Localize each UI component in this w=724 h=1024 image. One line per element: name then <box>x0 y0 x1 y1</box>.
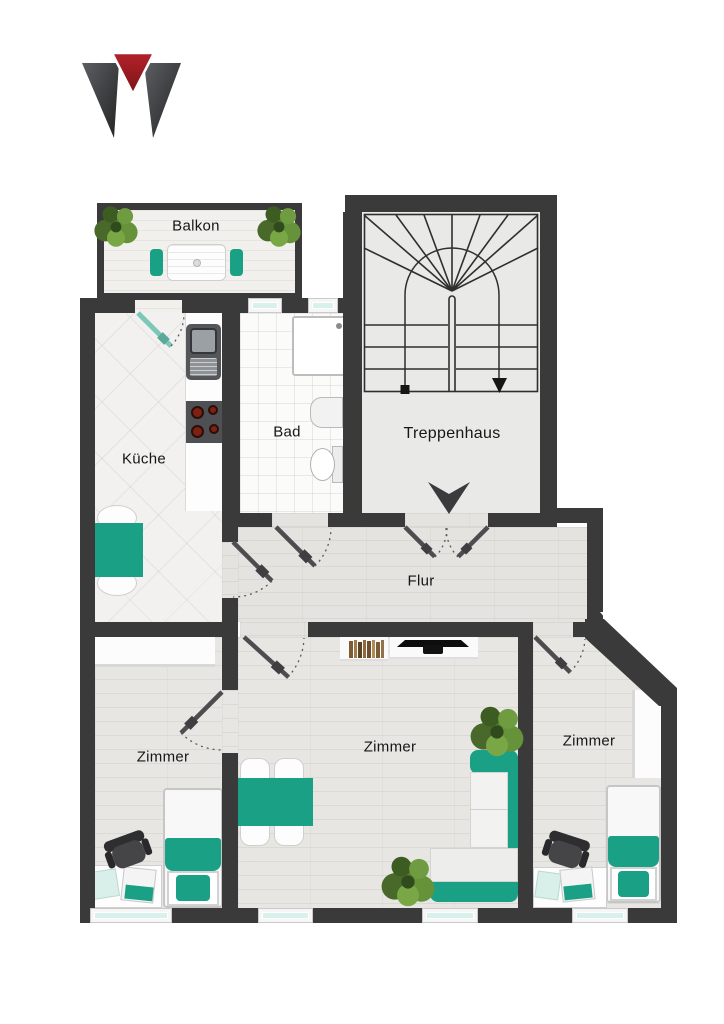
wardrobe-right-room <box>632 690 661 778</box>
laptop-right-screen <box>563 884 592 901</box>
wall-kueche-flur <box>222 513 238 542</box>
wall-treppenhaus-left <box>343 212 362 513</box>
window-zimmer-rechts <box>572 908 628 923</box>
bed-left-blanket <box>165 838 221 871</box>
window-zimmer-links <box>90 908 172 923</box>
right-door-threshold <box>533 622 573 637</box>
sofa-seat-vertical <box>470 772 508 848</box>
wall <box>282 298 308 313</box>
stove-burner <box>209 424 219 434</box>
window-glass <box>262 912 309 919</box>
shower-drain <box>336 323 342 329</box>
wall-kueche-bad <box>222 313 240 513</box>
entrance-threshold <box>405 513 488 527</box>
stove-burner <box>208 405 218 415</box>
toilet-bowl <box>310 448 335 481</box>
wall-left-room-right <box>222 753 238 908</box>
window-glass <box>576 912 624 919</box>
bed-left-pillow <box>176 875 210 901</box>
bed-right-blanket <box>608 836 659 867</box>
bed-right-pillow <box>618 871 649 897</box>
room-label-flur: Flur <box>407 573 434 590</box>
window-zimmer-mitte-2 <box>422 908 478 923</box>
kitchen-sink-basin <box>190 328 217 354</box>
sofa-seat-corner <box>430 848 518 882</box>
dining-table <box>231 778 313 826</box>
stove-burner <box>191 406 204 419</box>
window-bad <box>248 298 282 313</box>
washbasin <box>310 397 343 428</box>
room-label-balkon: Balkon <box>172 218 220 235</box>
window-glass <box>312 302 334 309</box>
left-door-threshold <box>222 690 238 753</box>
kitchen-table <box>90 523 143 577</box>
treppenhaus-floor <box>362 212 540 513</box>
sofa-cushion-line <box>470 809 508 810</box>
room-label-kueche: Küche <box>122 451 166 468</box>
wall-notch-vertical <box>587 523 603 622</box>
middle-door-threshold <box>240 622 308 637</box>
wall-treppenhaus-bottom <box>488 513 557 527</box>
room-label-bad: Bad <box>273 424 301 441</box>
room-label-zimmer-links: Zimmer <box>137 749 190 766</box>
wall-bad-bottom <box>328 513 350 527</box>
room-label-zimmer-rechts: Zimmer <box>563 733 616 750</box>
w-mark-logo <box>82 53 181 138</box>
wall-kueche-flur <box>222 598 238 690</box>
kueche-door-threshold <box>222 542 238 598</box>
wall-treppenhaus-bottom <box>350 513 405 527</box>
window-glass <box>94 912 168 919</box>
room-label-zimmer-mitte: Zimmer <box>364 739 417 756</box>
wall-kueche-zimmer <box>80 622 238 637</box>
window-glass <box>252 302 278 309</box>
wall-flur-bottom <box>308 622 533 637</box>
wall-treppenhaus-top <box>345 195 557 212</box>
bookshelf-board <box>340 637 388 661</box>
wall <box>182 298 248 313</box>
bad-door-threshold <box>272 513 328 527</box>
balcony-door-threshold <box>135 298 182 313</box>
window-zimmer-mitte-1 <box>258 908 313 923</box>
room-label-treppenhaus: Treppenhaus <box>404 425 501 443</box>
stove-burner <box>191 425 204 438</box>
wall-right-outer <box>661 685 677 923</box>
wall-treppenhaus-right <box>540 195 557 515</box>
wall-flur-bottom <box>573 622 603 637</box>
window-glass <box>426 912 474 919</box>
wall-left-outer <box>80 298 95 923</box>
papers-right-desk <box>534 870 562 900</box>
floor-plan: Balkon Küche Bad Treppenhaus Flur Zimmer… <box>0 0 724 1024</box>
wardrobe-left-room <box>90 637 215 667</box>
sofa-bottom-band <box>430 882 518 902</box>
tv-board <box>390 637 478 659</box>
window-bad <box>308 298 338 313</box>
wall-middle-right-divider <box>518 637 533 908</box>
laptop-left-screen <box>124 885 153 902</box>
kitchen-drainboard <box>190 358 217 376</box>
